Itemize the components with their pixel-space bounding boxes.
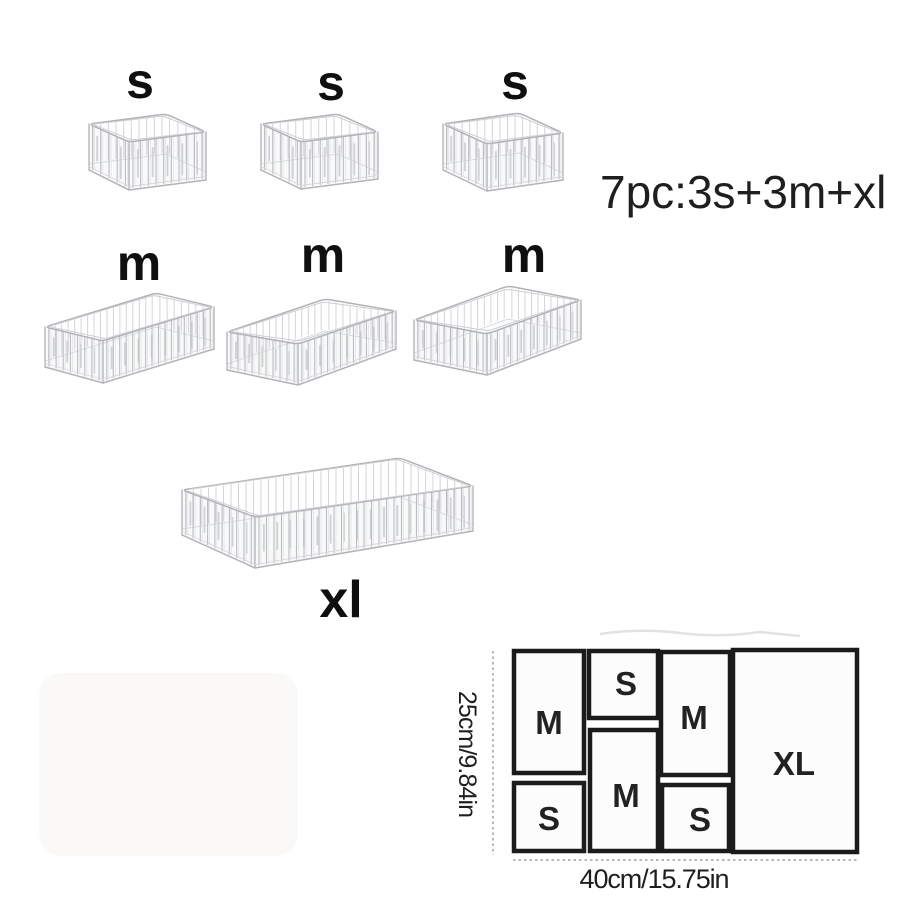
svg-text:25cm/9.84in: 25cm/9.84in (453, 691, 481, 817)
svg-text:M: M (535, 704, 563, 741)
svg-text:7pc:3s+3m+xl: 7pc:3s+3m+xl (600, 166, 886, 218)
svg-text:40cm/15.75in: 40cm/15.75in (580, 864, 729, 894)
svg-text:m: m (117, 235, 161, 291)
svg-text:M: M (680, 699, 708, 736)
svg-text:s: s (501, 54, 529, 110)
svg-text:S: S (689, 801, 711, 838)
svg-text:s: s (126, 53, 154, 109)
svg-text:s: s (317, 55, 345, 111)
svg-text:S: S (615, 665, 637, 702)
svg-text:XL: XL (773, 745, 815, 782)
svg-text:m: m (301, 227, 345, 283)
svg-text:xl: xl (319, 571, 362, 629)
svg-text:S: S (538, 800, 560, 837)
svg-text:m: m (502, 227, 546, 283)
svg-text:M: M (612, 777, 640, 814)
